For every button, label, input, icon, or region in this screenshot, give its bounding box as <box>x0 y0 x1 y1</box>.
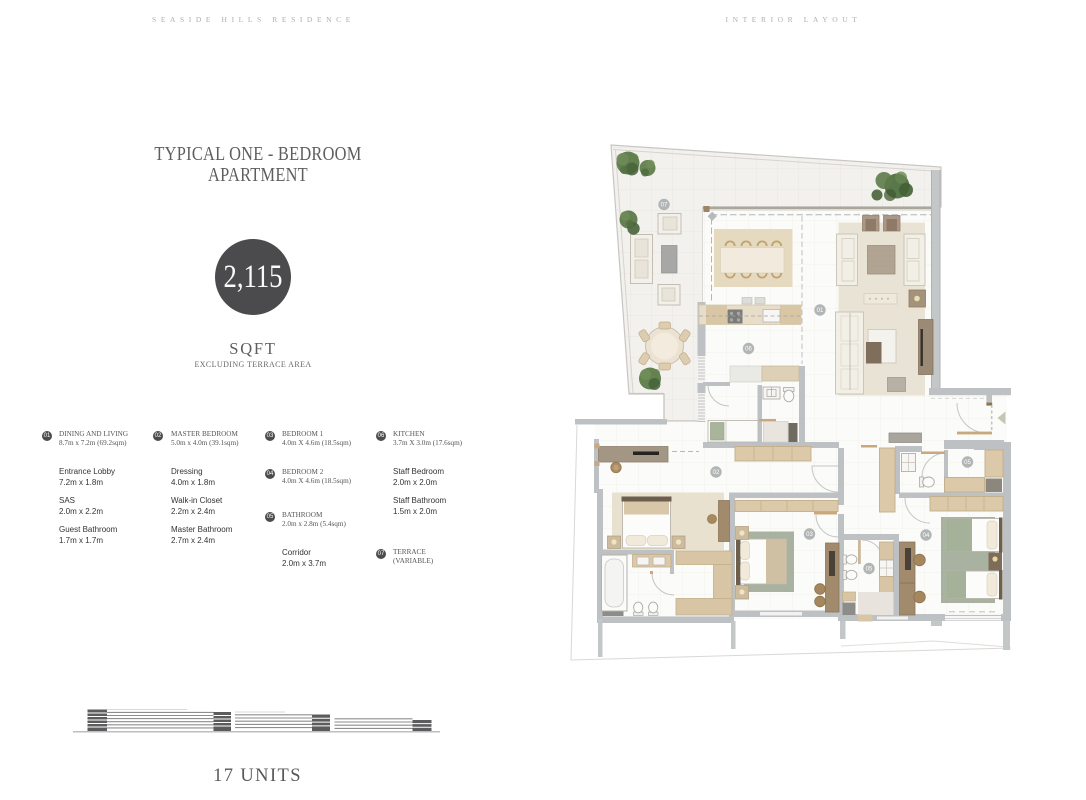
svg-text:07: 07 <box>661 203 668 209</box>
svg-text:01: 01 <box>817 308 824 314</box>
svg-text:03: 03 <box>806 532 813 538</box>
svg-text:05: 05 <box>866 567 873 573</box>
svg-text:02: 02 <box>713 470 720 476</box>
svg-text:06: 06 <box>745 347 752 353</box>
svg-text:05: 05 <box>964 460 971 466</box>
svg-text:04: 04 <box>923 533 930 539</box>
